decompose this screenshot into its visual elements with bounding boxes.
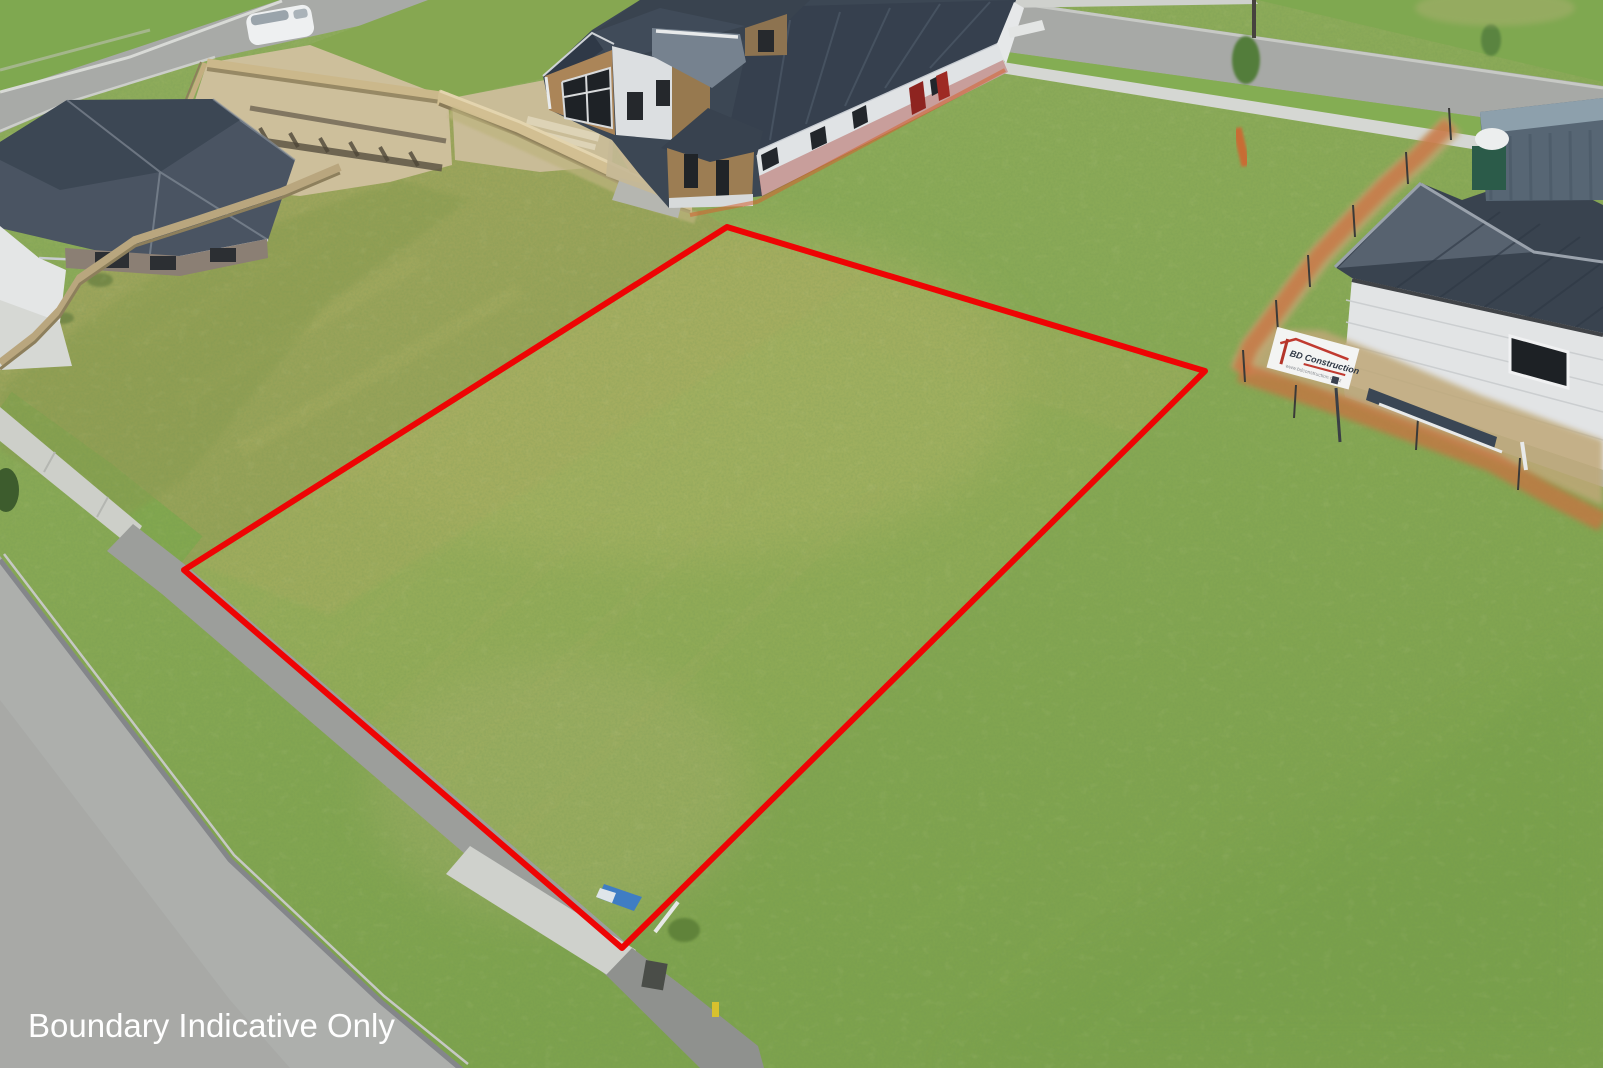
svg-text:Boundary Indicative Only: Boundary Indicative Only — [28, 1007, 395, 1044]
